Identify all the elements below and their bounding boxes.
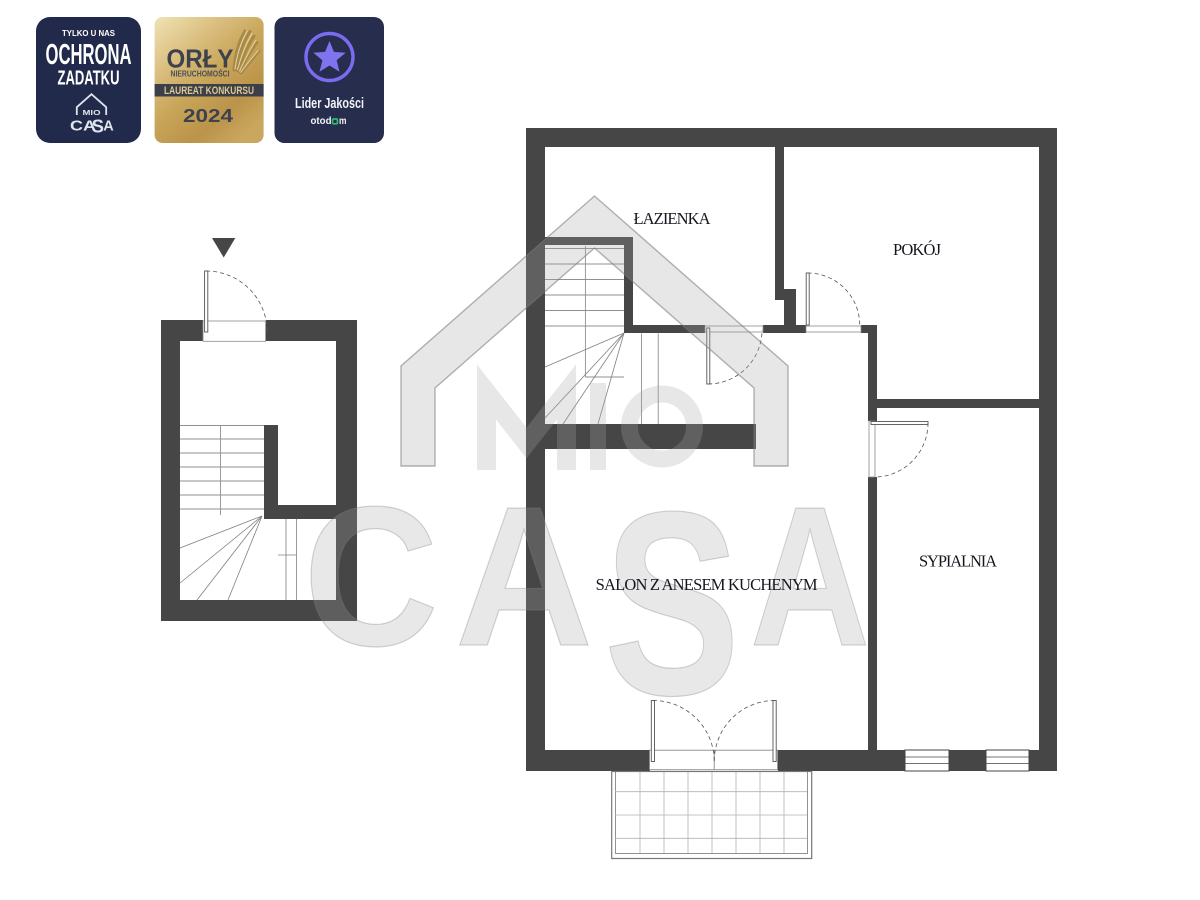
svg-text:2024: 2024 (183, 105, 234, 126)
svg-text:A: A (103, 119, 114, 135)
svg-text:otod: otod (311, 116, 332, 127)
svg-text:C: C (303, 465, 438, 688)
svg-text:Lider Jakości: Lider Jakości (295, 95, 364, 112)
svg-text:POKÓJ: POKÓJ (893, 240, 942, 259)
svg-text:ZADATKU: ZADATKU (58, 67, 120, 90)
svg-text:S: S (92, 116, 104, 137)
svg-text:m: m (339, 116, 347, 127)
svg-text:NIERUCHOMOŚCI: NIERUCHOMOŚCI (171, 70, 230, 79)
svg-text:SYPIALNIA: SYPIALNIA (919, 552, 997, 571)
svg-text:ŁAZIENKA: ŁAZIENKA (634, 209, 711, 228)
svg-text:SALON Z ANESEM KUCHENYM: SALON Z ANESEM KUCHENYM (596, 575, 818, 594)
svg-text:S: S (604, 456, 740, 749)
svg-text:A: A (455, 465, 593, 687)
svg-text:TYLKO U NAS: TYLKO U NAS (62, 29, 116, 38)
svg-text:LAUREAT KONKURSU: LAUREAT KONKURSU (164, 85, 254, 97)
